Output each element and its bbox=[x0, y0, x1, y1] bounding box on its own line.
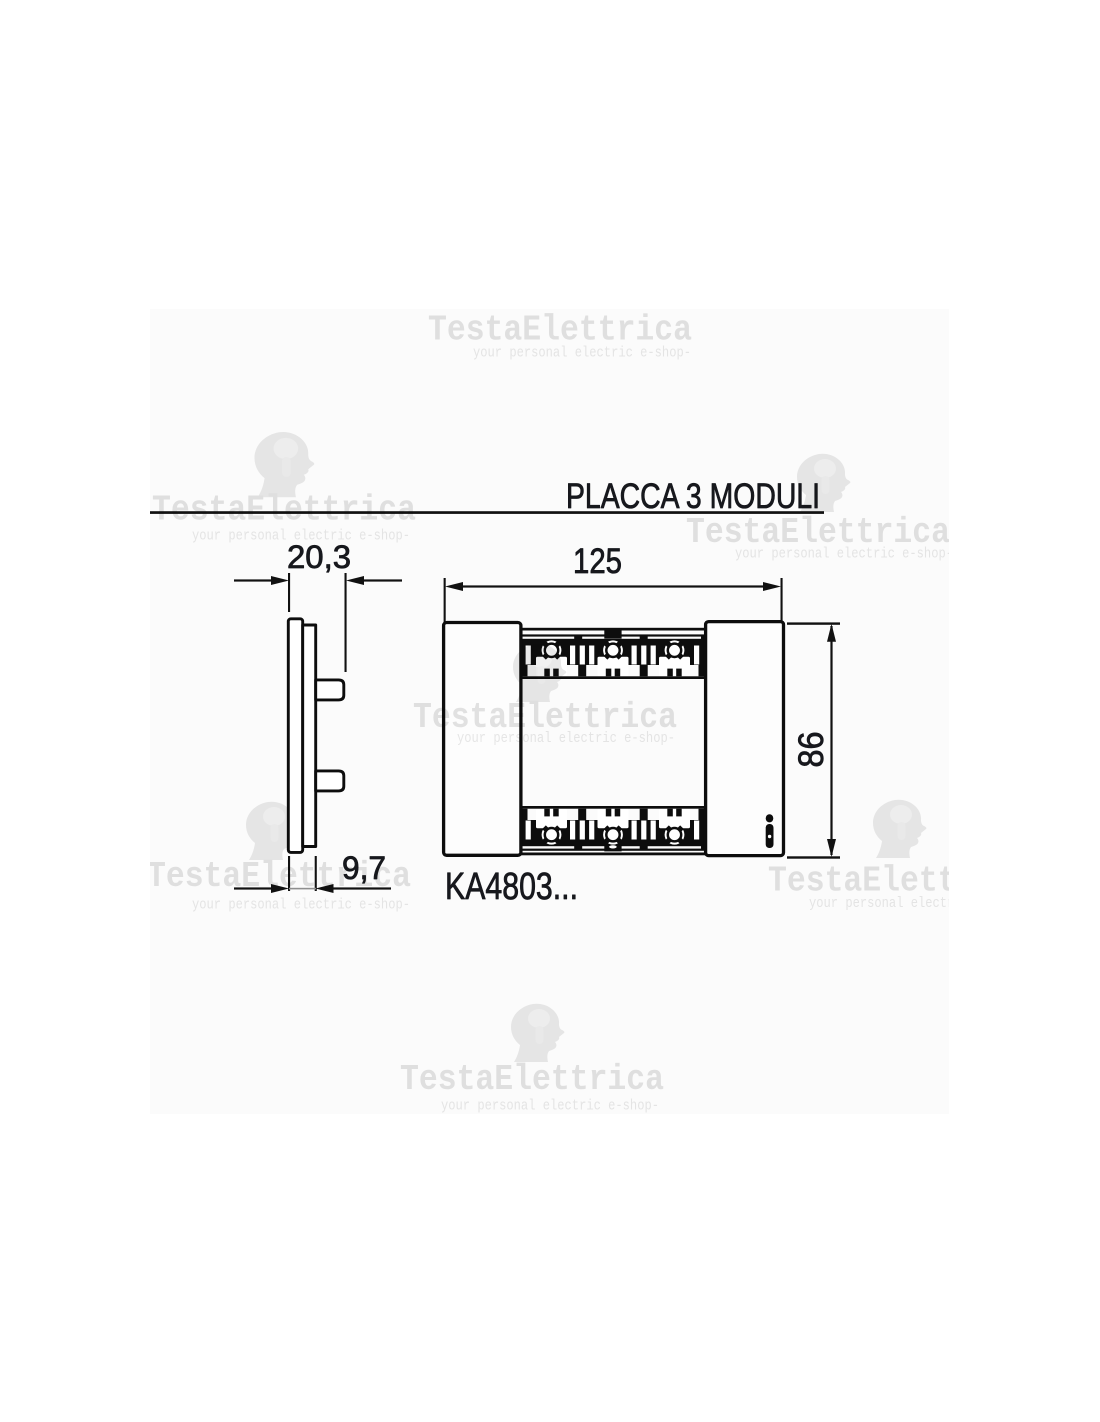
svg-text:your personal electric e-shop-: your personal electric e-shop- bbox=[441, 1098, 659, 1115]
svg-text:TestaElettrica: TestaElettrica bbox=[400, 1059, 664, 1100]
svg-text:your personal electric e-shop-: your personal electric e-shop- bbox=[809, 895, 1027, 912]
svg-text:TestaElettrica: TestaElettrica bbox=[152, 490, 416, 531]
svg-text:your personal electric e-shop-: your personal electric e-shop- bbox=[473, 345, 691, 362]
svg-text:your personal electric e-shop-: your personal electric e-shop- bbox=[192, 897, 410, 914]
svg-text:your personal electric e-shop-: your personal electric e-shop- bbox=[457, 730, 675, 747]
svg-text:TestaElettrica: TestaElettrica bbox=[147, 856, 411, 897]
svg-text:your personal electric e-shop-: your personal electric e-shop- bbox=[735, 546, 953, 563]
svg-text:your personal electric e-shop-: your personal electric e-shop- bbox=[192, 528, 410, 545]
